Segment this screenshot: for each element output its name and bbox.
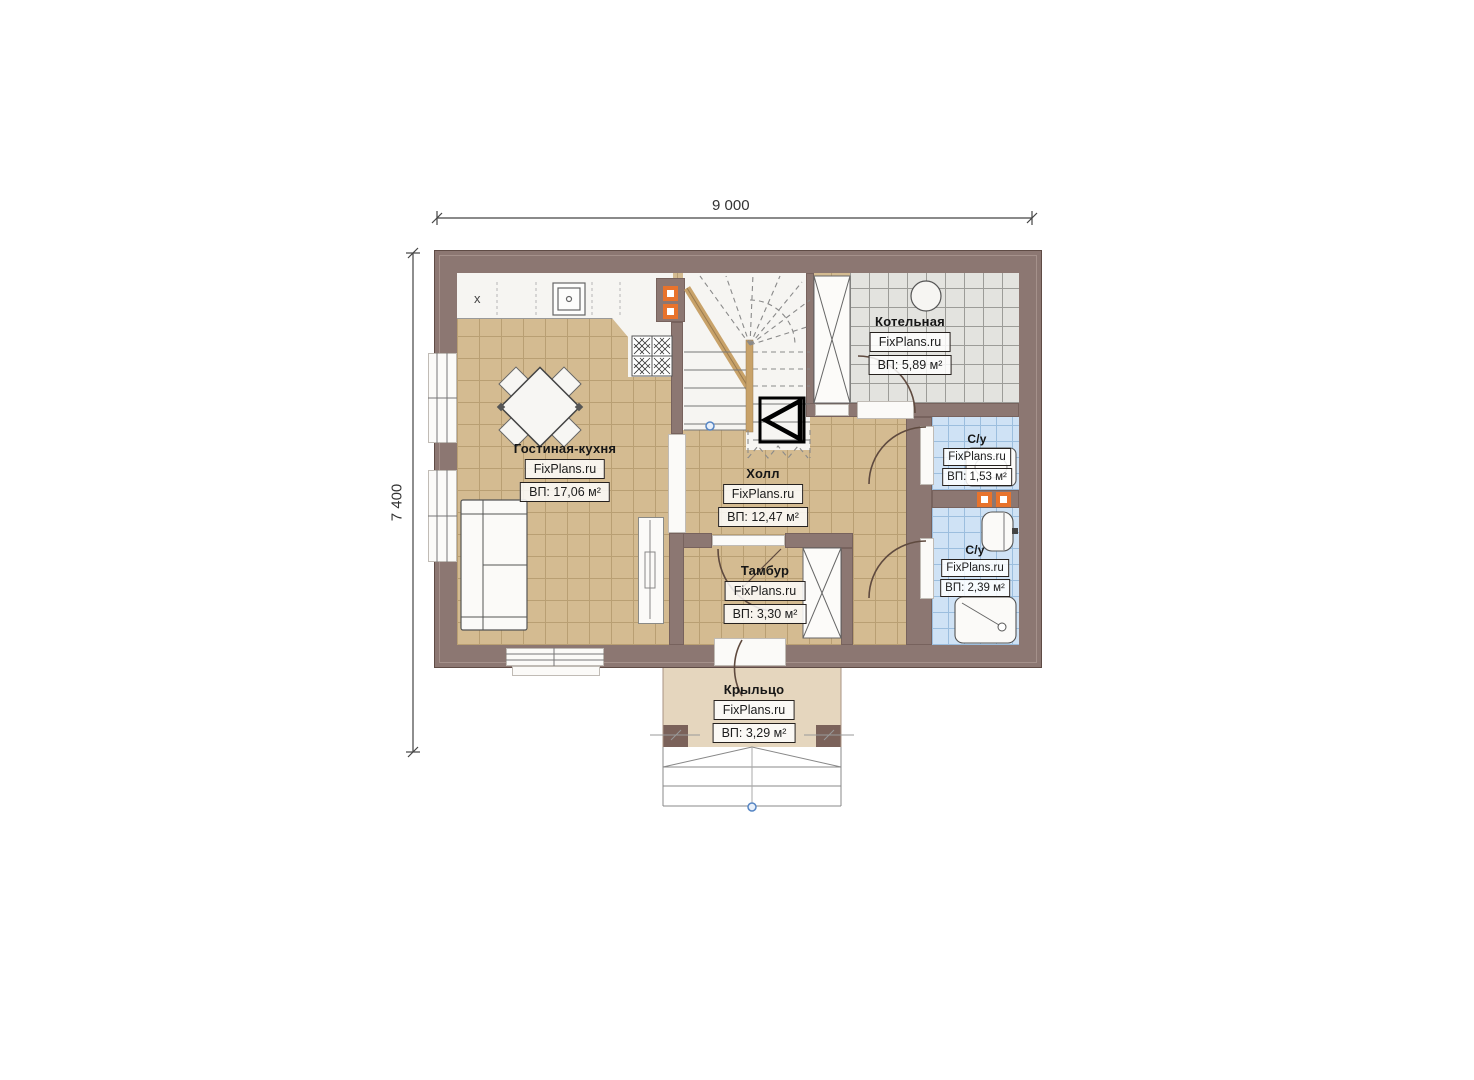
area-box: ВП: 3,29 м² bbox=[713, 723, 796, 743]
closet-right-wall bbox=[841, 548, 853, 645]
kitchen-hall-doorway bbox=[668, 434, 686, 533]
watermark-box: FixPlans.ru bbox=[525, 459, 606, 479]
window-bottom-sill bbox=[512, 666, 600, 676]
room-label-bathroom1: С/у FixPlans.ru ВП: 1,53 м² bbox=[942, 432, 1012, 486]
room-label-porch: Крыльцо FixPlans.ru ВП: 3,29 м² bbox=[713, 682, 796, 743]
stair-closet-wall bbox=[806, 273, 814, 416]
window-left-2 bbox=[428, 470, 457, 562]
room-name: Гостиная-кухня bbox=[514, 441, 616, 456]
window-bottom bbox=[506, 648, 604, 666]
floor-plan-canvas: 9 000 7 400 x Гостиная-кухня FixPlans.ru… bbox=[0, 0, 1474, 1080]
vent-block-icon bbox=[663, 304, 678, 319]
area-box: ВП: 12,47 м² bbox=[718, 507, 808, 527]
room-label-vestibule: Тамбур FixPlans.ru ВП: 3,30 м² bbox=[724, 563, 807, 624]
axis-marker-dot bbox=[748, 803, 756, 811]
vent-block-icon bbox=[663, 286, 678, 301]
staircase-landing bbox=[746, 430, 810, 450]
watermark-box: FixPlans.ru bbox=[714, 700, 795, 720]
vestibule-top-wall-right bbox=[785, 533, 853, 548]
area-box: ВП: 3,30 м² bbox=[724, 604, 807, 624]
window-left-1 bbox=[428, 353, 457, 443]
bathroom2-door-leaf bbox=[920, 538, 934, 599]
kitchen-hall-wall-upper bbox=[671, 322, 683, 434]
bathroom1-door-leaf bbox=[920, 426, 934, 485]
entrance-door-threshold bbox=[714, 638, 786, 666]
vent-block-icon bbox=[996, 492, 1011, 507]
vestibule-top-wall-left bbox=[683, 533, 712, 548]
room-name: С/у bbox=[965, 543, 984, 557]
watermark-box: FixPlans.ru bbox=[943, 448, 1011, 466]
fridge-x-marker: x bbox=[474, 291, 481, 306]
porch-post bbox=[816, 725, 841, 747]
area-box: ВП: 1,53 м² bbox=[942, 468, 1012, 486]
watermark-box: FixPlans.ru bbox=[723, 484, 804, 504]
porch-post bbox=[663, 725, 688, 747]
watermark-box: FixPlans.ru bbox=[725, 581, 806, 601]
vent-block-icon bbox=[977, 492, 992, 507]
room-label-living: Гостиная-кухня FixPlans.ru ВП: 17,06 м² bbox=[514, 441, 616, 502]
area-box: ВП: 2,39 м² bbox=[940, 579, 1010, 597]
room-name: С/у bbox=[967, 432, 986, 446]
sliding-door-panel bbox=[638, 517, 664, 624]
room-name: Тамбур bbox=[741, 563, 789, 578]
dimension-left: 7 400 bbox=[388, 484, 405, 522]
watermark-box: FixPlans.ru bbox=[941, 559, 1009, 577]
watermark-box: FixPlans.ru bbox=[870, 332, 951, 352]
room-label-bathroom2: С/у FixPlans.ru ВП: 2,39 м² bbox=[940, 543, 1010, 597]
room-label-boiler: Котельная FixPlans.ru ВП: 5,89 м² bbox=[869, 314, 952, 375]
room-name: Крыльцо bbox=[724, 682, 785, 697]
area-box: ВП: 5,89 м² bbox=[869, 355, 952, 375]
staircase-area bbox=[683, 273, 810, 430]
boiler-door-threshold bbox=[857, 401, 914, 419]
room-name: Холл bbox=[746, 466, 779, 481]
kitchen-hall-wall-lower bbox=[669, 533, 684, 645]
closet-threshold bbox=[815, 404, 849, 416]
room-name: Котельная bbox=[875, 314, 945, 329]
vestibule-doorway bbox=[712, 535, 785, 546]
area-box: ВП: 17,06 м² bbox=[520, 482, 610, 502]
dimension-top: 9 000 bbox=[712, 197, 750, 214]
room-label-hall: Холл FixPlans.ru ВП: 12,47 м² bbox=[718, 466, 808, 527]
